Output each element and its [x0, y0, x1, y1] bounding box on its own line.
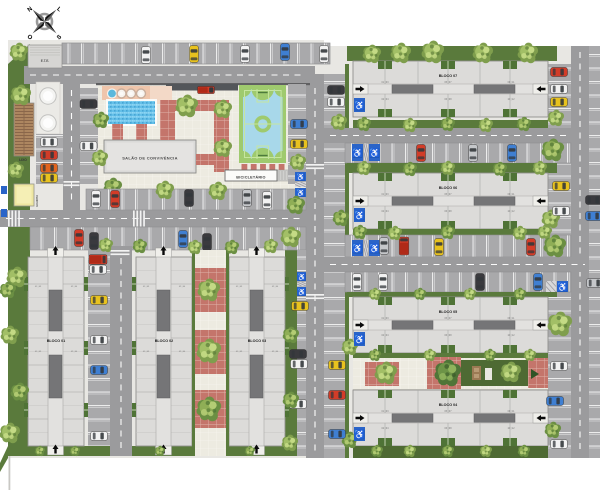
svg-text:♿: ♿ — [297, 287, 306, 296]
svg-text:BLOCO 05: BLOCO 05 — [439, 310, 457, 314]
svg-text:09 | 11: 09 | 11 — [508, 318, 516, 320]
svg-text:05 | 07: 05 | 07 — [445, 411, 453, 413]
svg-text:BLOCO 06: BLOCO 06 — [439, 186, 457, 190]
svg-text:02 | 04: 02 | 04 — [179, 351, 186, 353]
svg-text:♿: ♿ — [369, 244, 380, 254]
svg-text:BLOCO 07: BLOCO 07 — [439, 74, 457, 78]
svg-text:BLOCO 01: BLOCO 01 — [47, 339, 65, 343]
svg-text:02 | 04: 02 | 04 — [272, 351, 279, 353]
svg-text:E.T.E.: E.T.E. — [41, 59, 50, 63]
svg-text:02 | 04: 02 | 04 — [272, 286, 279, 288]
svg-text:10 | 12: 10 | 12 — [508, 335, 516, 337]
svg-text:♿: ♿ — [354, 335, 365, 345]
svg-text:05 | 07: 05 | 07 — [445, 82, 453, 84]
svg-text:09 | 11: 09 | 11 — [508, 194, 516, 196]
svg-text:BLOCO 04: BLOCO 04 — [439, 403, 458, 407]
svg-text:06 | 08: 06 | 08 — [445, 211, 453, 213]
svg-text:01 | 03: 01 | 03 — [35, 286, 42, 288]
svg-text:LIXO: LIXO — [19, 158, 27, 162]
svg-text:♿: ♿ — [354, 101, 365, 111]
svg-text:BLOCO 03: BLOCO 03 — [248, 339, 266, 343]
svg-text:09 | 11: 09 | 11 — [508, 411, 516, 413]
svg-text:02 | 04: 02 | 04 — [382, 99, 390, 101]
svg-text:01 | 03: 01 | 03 — [382, 194, 390, 196]
svg-text:02 | 04: 02 | 04 — [71, 286, 78, 288]
svg-text:02 | 04: 02 | 04 — [179, 286, 186, 288]
svg-text:01 | 03: 01 | 03 — [382, 318, 390, 320]
svg-text:GUARITA: GUARITA — [35, 195, 39, 207]
svg-text:01 | 03: 01 | 03 — [382, 82, 390, 84]
svg-text:09 | 11: 09 | 11 — [508, 82, 516, 84]
svg-text:♿: ♿ — [296, 172, 305, 181]
svg-text:♿: ♿ — [352, 244, 363, 254]
svg-text:01 | 03: 01 | 03 — [382, 411, 390, 413]
svg-text:01 | 03: 01 | 03 — [236, 351, 243, 353]
svg-text:♿: ♿ — [557, 282, 568, 292]
svg-text:♿: ♿ — [352, 148, 363, 158]
svg-text:SALÃO DE CONVIVÊNCIA: SALÃO DE CONVIVÊNCIA — [122, 156, 178, 161]
svg-text:10 | 12: 10 | 12 — [508, 211, 516, 213]
svg-text:01 | 03: 01 | 03 — [143, 351, 150, 353]
svg-text:♿: ♿ — [354, 211, 365, 221]
svg-text:01 | 03: 01 | 03 — [143, 286, 150, 288]
svg-text:06 | 08: 06 | 08 — [445, 335, 453, 337]
svg-text:10 | 12: 10 | 12 — [508, 99, 516, 101]
svg-text:♿: ♿ — [297, 272, 306, 281]
svg-text:♿: ♿ — [354, 430, 365, 440]
svg-text:02 | 04: 02 | 04 — [382, 211, 390, 213]
svg-text:01 | 03: 01 | 03 — [236, 286, 243, 288]
svg-text:10 | 12: 10 | 12 — [508, 428, 516, 430]
svg-text:BLOCO 02: BLOCO 02 — [155, 339, 173, 343]
svg-text:01 | 03: 01 | 03 — [35, 351, 42, 353]
svg-text:BICICLETÁRIO: BICICLETÁRIO — [236, 174, 265, 179]
svg-text:06 | 08: 06 | 08 — [445, 99, 453, 101]
svg-text:02 | 04: 02 | 04 — [382, 335, 390, 337]
svg-text:05 | 07: 05 | 07 — [445, 194, 453, 196]
svg-text:06 | 08: 06 | 08 — [445, 428, 453, 430]
svg-text:02 | 04: 02 | 04 — [71, 351, 78, 353]
svg-text:02 | 04: 02 | 04 — [382, 428, 390, 430]
svg-text:05 | 07: 05 | 07 — [445, 318, 453, 320]
svg-text:♿: ♿ — [369, 148, 380, 158]
